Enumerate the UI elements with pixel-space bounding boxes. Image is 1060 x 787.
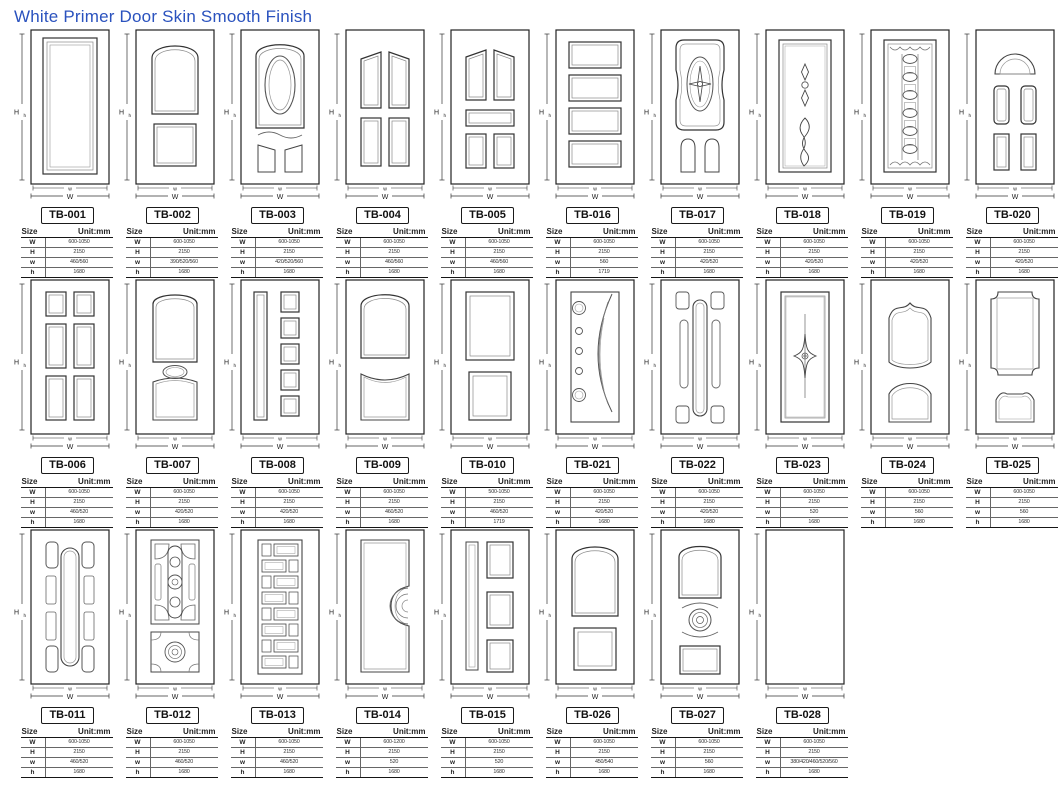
door-drawing-tb-013: HhwW	[223, 528, 323, 706]
size-row-value: 600-1050	[46, 738, 113, 747]
svg-text:h: h	[653, 113, 656, 119]
door-drawing-tb-006: HhwW	[13, 278, 113, 456]
svg-text:h: h	[758, 113, 761, 119]
size-row-value: 600-1050	[256, 488, 323, 497]
svg-text:W: W	[276, 194, 283, 201]
svg-text:h: h	[443, 613, 446, 619]
size-row-value: 1680	[991, 518, 1058, 527]
size-row-value: 2150	[466, 498, 533, 507]
size-row-value: 600-1050	[466, 738, 533, 747]
size-table-title: Size	[232, 477, 248, 486]
size-table: SizeUnit:mmW600-1200H2150w520h1680	[336, 727, 428, 778]
svg-text:w: w	[1013, 187, 1017, 193]
size-table-row: W600-1050	[966, 488, 1058, 498]
door-drawing-tb-015: HhwW	[433, 528, 533, 706]
svg-text:h: h	[653, 363, 656, 369]
size-row-label: w	[336, 758, 361, 767]
size-table-title: Size	[547, 477, 563, 486]
size-row-label: W	[966, 488, 991, 497]
svg-text:w: w	[1013, 437, 1017, 443]
size-table-row: H2150	[651, 498, 743, 508]
size-row-label: w	[441, 258, 466, 267]
svg-text:H: H	[539, 610, 544, 617]
size-row-value: 420/520	[571, 508, 638, 517]
size-table: SizeUnit:mmW600-1050H2150w460/520h1680	[231, 727, 323, 778]
size-table-row: W600-1050	[21, 238, 113, 248]
door-drawing-tb-025: HhwW	[958, 278, 1058, 456]
size-table-row: w420/520/560	[231, 258, 323, 268]
door-code-badge: TB-005	[461, 207, 514, 224]
size-table-row: H2150	[546, 498, 638, 508]
size-table-row: H2150	[126, 498, 218, 508]
size-table-unit: Unit:mm	[498, 227, 530, 236]
size-row-value: 520	[361, 758, 428, 767]
size-table-row: H2150	[546, 748, 638, 758]
size-row-value: 2150	[46, 498, 113, 507]
size-row-label: H	[336, 248, 361, 257]
svg-text:w: w	[68, 687, 72, 693]
size-table-unit: Unit:mm	[1023, 477, 1055, 486]
size-table-row: H2150	[966, 498, 1058, 508]
svg-text:H: H	[959, 360, 964, 367]
size-table-row: w390/520/560	[126, 258, 218, 268]
size-table: SizeUnit:mmW600-1050H2150w420/520h1680	[231, 477, 323, 528]
size-table-row: W600-1050	[756, 238, 848, 248]
size-table-row: H2150	[756, 748, 848, 758]
size-row-value: 600-1050	[151, 238, 218, 247]
size-row-value: 2150	[676, 248, 743, 257]
size-table-unit: Unit:mm	[918, 477, 950, 486]
size-row-label: W	[21, 738, 46, 747]
size-row-label: w	[756, 258, 781, 267]
size-table-title: Size	[862, 477, 878, 486]
svg-text:h: h	[968, 113, 971, 119]
size-row-label: H	[966, 498, 991, 507]
size-table-row: H2150	[231, 498, 323, 508]
svg-text:W: W	[381, 694, 388, 701]
size-row-label: W	[441, 488, 466, 497]
size-row-value: 1680	[151, 518, 218, 527]
size-row-label: H	[756, 248, 781, 257]
size-row-value: 1680	[886, 518, 953, 527]
size-row-label: H	[336, 498, 361, 507]
size-table-row: W600-1050	[651, 738, 743, 748]
size-row-value: 450/540	[571, 758, 638, 767]
door-drawing-tb-016: HhwW	[538, 28, 638, 206]
svg-text:w: w	[488, 187, 492, 193]
size-row-value: 2150	[361, 248, 428, 257]
size-table-unit: Unit:mm	[78, 477, 110, 486]
svg-text:W: W	[171, 444, 178, 451]
door-drawing-tb-021: HhwW	[538, 278, 638, 456]
size-row-label: h	[756, 768, 781, 777]
size-table-row: W600-1050	[336, 238, 428, 248]
size-table-row: H2150	[231, 248, 323, 258]
svg-text:h: h	[758, 613, 761, 619]
size-row-value: 460/520	[46, 508, 113, 517]
door-code-badge: TB-020	[986, 207, 1039, 224]
size-row-value: 1680	[361, 768, 428, 777]
svg-text:W: W	[486, 194, 493, 201]
size-table-row: H2150	[861, 498, 953, 508]
size-table-title: Size	[337, 227, 353, 236]
door-cell-tb-015: HhwWTB-015SizeUnit:mmW600-1050H2150w520h…	[430, 528, 535, 778]
svg-text:w: w	[803, 187, 807, 193]
size-table-title: Size	[22, 477, 38, 486]
size-row-label: h	[231, 268, 256, 277]
size-row-value: 420/520	[781, 258, 848, 267]
svg-text:W: W	[66, 444, 73, 451]
size-table-unit: Unit:mm	[603, 227, 635, 236]
size-row-label: W	[651, 738, 676, 747]
size-table-row: H2150	[21, 248, 113, 258]
size-row-label: W	[231, 738, 256, 747]
size-table-row: H2150	[21, 748, 113, 758]
svg-text:W: W	[276, 444, 283, 451]
size-row-label: h	[231, 518, 256, 527]
size-row-label: W	[336, 488, 361, 497]
size-table-row: h1680	[441, 268, 533, 277]
svg-text:H: H	[434, 360, 439, 367]
door-drawing-tb-002: HhwW	[118, 28, 218, 206]
size-row-value: 1680	[571, 768, 638, 777]
size-table: SizeUnit:mmW600-1050H2150w460/560h1680	[441, 227, 533, 278]
size-table-row: W600-1050	[126, 238, 218, 248]
size-row-value: 1680	[466, 768, 533, 777]
size-row-label: W	[21, 238, 46, 247]
size-row-value: 1680	[361, 518, 428, 527]
size-row-value: 460/520	[46, 758, 113, 767]
size-row-value: 1680	[676, 518, 743, 527]
svg-text:H: H	[224, 610, 229, 617]
size-row-value: 2150	[151, 248, 218, 257]
size-table-title: Size	[337, 727, 353, 736]
size-row-label: w	[966, 258, 991, 267]
svg-text:H: H	[749, 360, 754, 367]
svg-text:w: w	[278, 687, 282, 693]
size-table-row: W600-1200	[336, 738, 428, 748]
size-table-row: W600-1050	[231, 738, 323, 748]
door-cell-tb-019: HhwWTB-019SizeUnit:mmW600-1050H2150w420/…	[850, 28, 955, 278]
size-table-title: Size	[22, 727, 38, 736]
door-cell-tb-027: HhwWTB-027SizeUnit:mmW600-1050H2150w560h…	[640, 528, 745, 778]
size-row-value: 2150	[256, 498, 323, 507]
svg-text:H: H	[434, 610, 439, 617]
size-table-row: W600-1050	[861, 488, 953, 498]
svg-text:h: h	[548, 363, 551, 369]
size-table-row: h1680	[756, 268, 848, 277]
size-row-value: 600-1050	[361, 488, 428, 497]
size-row-label: H	[861, 248, 886, 257]
size-row-value: 2150	[676, 748, 743, 757]
size-table-row: W600-1050	[651, 238, 743, 248]
size-row-label: h	[861, 518, 886, 527]
size-row-value: 2150	[571, 748, 638, 757]
size-table-row: W600-1050	[441, 738, 533, 748]
svg-text:w: w	[278, 187, 282, 193]
door-row-3: HhwWTB-011SizeUnit:mmW600-1050H2150w460/…	[10, 528, 1060, 778]
svg-text:W: W	[1011, 194, 1018, 201]
size-table-row: W600-1050	[21, 488, 113, 498]
size-table: SizeUnit:mmW600-1050H2150w420/520h1680	[651, 477, 743, 528]
size-table: SizeUnit:mmW600-1050H2150w460/520h1680	[126, 727, 218, 778]
door-cell-tb-009: HhwWTB-009SizeUnit:mmW600-1050H2150w460/…	[325, 278, 430, 528]
size-row-value: 2150	[46, 248, 113, 257]
size-row-value: 1680	[46, 768, 113, 777]
svg-text:w: w	[698, 437, 702, 443]
size-row-value: 600-1050	[151, 488, 218, 497]
size-table: SizeUnit:mmW600-1050H2150w460/520h1680	[21, 727, 113, 778]
door-code-badge: TB-024	[881, 457, 934, 474]
size-table-row: w560	[966, 508, 1058, 518]
svg-text:H: H	[14, 610, 19, 617]
size-row-value: 420/520/560	[256, 258, 323, 267]
door-drawing-tb-001: HhwW	[13, 28, 113, 206]
size-row-value: 2150	[571, 248, 638, 257]
size-table-title: Size	[232, 727, 248, 736]
size-table-row: w420/520	[966, 258, 1058, 268]
size-table-row: h1680	[21, 268, 113, 277]
svg-text:W: W	[906, 194, 913, 201]
door-code-badge: TB-017	[671, 207, 724, 224]
size-table: SizeUnit:mmW600-1050H2150w420/520h1680	[966, 227, 1058, 278]
svg-text:W: W	[696, 444, 703, 451]
size-table-unit: Unit:mm	[813, 227, 845, 236]
size-table-row: w560	[861, 508, 953, 518]
size-row-label: H	[21, 248, 46, 257]
size-row-value: 1680	[466, 268, 533, 277]
size-row-value: 420/520	[676, 508, 743, 517]
svg-text:H: H	[329, 110, 334, 117]
size-row-value: 1680	[151, 268, 218, 277]
size-row-label: w	[231, 258, 256, 267]
door-code-badge: TB-012	[146, 707, 199, 724]
size-row-label: h	[546, 768, 571, 777]
size-table-unit: Unit:mm	[78, 227, 110, 236]
door-cell-tb-020: HhwWTB-020SizeUnit:mmW600-1050H2150w420/…	[955, 28, 1060, 278]
size-table-row: W600-1050	[126, 488, 218, 498]
size-row-label: h	[966, 518, 991, 527]
size-table-row: H2150	[441, 248, 533, 258]
size-row-label: w	[441, 508, 466, 517]
size-table-unit: Unit:mm	[393, 727, 425, 736]
size-table-unit: Unit:mm	[708, 227, 740, 236]
size-table-row: H2150	[966, 248, 1058, 258]
size-row-value: 600-1050	[466, 238, 533, 247]
size-table-row: H2150	[441, 498, 533, 508]
svg-text:h: h	[443, 113, 446, 119]
size-row-value: 420/520	[256, 508, 323, 517]
size-row-label: W	[546, 738, 571, 747]
size-row-label: w	[336, 508, 361, 517]
size-row-value: 1680	[256, 768, 323, 777]
size-row-label: w	[231, 758, 256, 767]
size-row-label: W	[441, 238, 466, 247]
door-cell-tb-014: HhwWTB-014SizeUnit:mmW600-1200H2150w520h…	[325, 528, 430, 778]
door-code-badge: TB-025	[986, 457, 1039, 474]
door-drawing-tb-009: HhwW	[328, 278, 428, 456]
svg-text:H: H	[749, 610, 754, 617]
svg-text:h: h	[128, 613, 131, 619]
size-table-row: h1680	[651, 518, 743, 527]
size-row-label: w	[861, 258, 886, 267]
size-row-value: 460/560	[46, 258, 113, 267]
size-table: SizeUnit:mmW600-1050H2150w560h1680	[966, 477, 1058, 528]
size-table-unit: Unit:mm	[183, 477, 215, 486]
svg-text:H: H	[329, 610, 334, 617]
size-row-label: h	[441, 268, 466, 277]
svg-text:w: w	[173, 687, 177, 693]
size-table: SizeUnit:mmW600-1050H2150w520h1680	[441, 727, 533, 778]
size-table-row: h1680	[21, 768, 113, 777]
svg-text:H: H	[14, 110, 19, 117]
svg-text:H: H	[119, 110, 124, 117]
size-table-row: w460/560	[21, 258, 113, 268]
size-table-row: H2150	[441, 748, 533, 758]
svg-text:h: h	[128, 113, 131, 119]
size-table-unit: Unit:mm	[393, 227, 425, 236]
size-row-label: H	[756, 748, 781, 757]
svg-text:w: w	[68, 437, 72, 443]
door-drawing-tb-012: HhwW	[118, 528, 218, 706]
size-row-value: 1680	[46, 268, 113, 277]
size-row-label: w	[756, 508, 781, 517]
size-table-unit: Unit:mm	[498, 727, 530, 736]
size-row-label: H	[231, 748, 256, 757]
svg-text:W: W	[66, 694, 73, 701]
size-row-label: h	[441, 768, 466, 777]
svg-text:W: W	[906, 444, 913, 451]
svg-text:W: W	[696, 694, 703, 701]
svg-text:W: W	[171, 694, 178, 701]
size-row-label: h	[126, 268, 151, 277]
size-table-row: H2150	[21, 498, 113, 508]
size-table-row: h1680	[651, 768, 743, 777]
size-table-title: Size	[442, 727, 458, 736]
size-row-value: 600-1050	[256, 738, 323, 747]
size-table-title: Size	[757, 227, 773, 236]
size-row-value: 1680	[256, 268, 323, 277]
size-row-label: H	[21, 748, 46, 757]
svg-text:w: w	[488, 687, 492, 693]
door-drawing-tb-027: HhwW	[643, 528, 743, 706]
size-row-value: 460/520	[361, 508, 428, 517]
size-row-value: 1680	[781, 768, 848, 777]
door-drawing-tb-011: HhwW	[13, 528, 113, 706]
size-row-value: 460/520	[256, 758, 323, 767]
size-table-row: w450/540	[546, 758, 638, 768]
size-row-label: H	[546, 248, 571, 257]
size-row-value: 1719	[466, 518, 533, 527]
door-cell-tb-024: HhwWTB-024SizeUnit:mmW600-1050H2150w560h…	[850, 278, 955, 528]
size-row-label: W	[231, 488, 256, 497]
svg-text:w: w	[908, 437, 912, 443]
door-drawing-tb-010: HhwW	[433, 278, 533, 456]
svg-text:w: w	[593, 437, 597, 443]
size-row-value: 2150	[256, 748, 323, 757]
door-code-badge: TB-028	[776, 707, 829, 724]
size-row-value: 420/520	[886, 258, 953, 267]
svg-text:H: H	[959, 110, 964, 117]
door-code-badge: TB-027	[671, 707, 724, 724]
size-table-row: w380/420/460/520/560	[756, 758, 848, 768]
size-row-value: 600-1050	[886, 488, 953, 497]
size-row-value: 2150	[571, 498, 638, 507]
svg-text:w: w	[173, 437, 177, 443]
svg-text:H: H	[644, 610, 649, 617]
size-row-value: 560	[571, 258, 638, 267]
svg-text:H: H	[749, 110, 754, 117]
size-row-label: W	[126, 488, 151, 497]
size-table-unit: Unit:mm	[393, 477, 425, 486]
size-table: SizeUnit:mmW600-1050H2150w380/420/460/52…	[756, 727, 848, 778]
door-drawing-tb-004: HhwW	[328, 28, 428, 206]
size-table-row: H2150	[336, 498, 428, 508]
size-table-unit: Unit:mm	[708, 477, 740, 486]
svg-text:H: H	[14, 360, 19, 367]
size-table-row: W600-1050	[756, 738, 848, 748]
size-row-label: W	[861, 238, 886, 247]
size-table-title: Size	[967, 227, 983, 236]
size-row-label: h	[336, 518, 361, 527]
size-table-row: h1680	[336, 518, 428, 527]
size-table-title: Size	[22, 227, 38, 236]
size-table-unit: Unit:mm	[183, 727, 215, 736]
size-row-value: 2150	[676, 498, 743, 507]
size-row-label: h	[336, 268, 361, 277]
size-row-label: W	[756, 238, 781, 247]
size-row-label: W	[441, 738, 466, 747]
size-row-label: H	[441, 248, 466, 257]
svg-text:W: W	[1011, 444, 1018, 451]
svg-text:W: W	[801, 694, 808, 701]
size-table-title: Size	[967, 477, 983, 486]
size-row-value: 600-1050	[781, 488, 848, 497]
size-row-value: 600-1050	[46, 238, 113, 247]
svg-text:W: W	[381, 444, 388, 451]
door-code-badge: TB-026	[566, 707, 619, 724]
size-row-value: 1680	[361, 268, 428, 277]
size-row-label: H	[126, 248, 151, 257]
size-table-row: W600-1050	[546, 488, 638, 498]
size-row-label: w	[546, 508, 571, 517]
size-table-row: W600-1050	[441, 238, 533, 248]
svg-text:H: H	[434, 110, 439, 117]
size-row-value: 600-1050	[991, 488, 1058, 497]
size-row-label: H	[126, 748, 151, 757]
size-table-row: w460/520	[21, 508, 113, 518]
door-drawing-tb-019: HhwW	[853, 28, 953, 206]
size-table-row: w520	[441, 758, 533, 768]
size-table-row: W600-1050	[651, 488, 743, 498]
size-row-value: 600-1050	[571, 238, 638, 247]
size-table-row: h1680	[336, 268, 428, 277]
svg-text:w: w	[908, 187, 912, 193]
size-row-label: H	[126, 498, 151, 507]
size-table: SizeUnit:mmW600-1050H2150w460/560h1680	[21, 227, 113, 278]
door-code-badge: TB-009	[356, 457, 409, 474]
size-row-label: H	[756, 498, 781, 507]
size-row-label: H	[546, 498, 571, 507]
door-code-badge: TB-018	[776, 207, 829, 224]
door-code-badge: TB-004	[356, 207, 409, 224]
size-table-row: H2150	[231, 748, 323, 758]
size-row-label: h	[546, 518, 571, 527]
size-table: SizeUnit:mmW600-1050H2150w450/540h1680	[546, 727, 638, 778]
size-row-value: 2150	[991, 498, 1058, 507]
size-row-label: h	[756, 268, 781, 277]
size-table-unit: Unit:mm	[813, 727, 845, 736]
